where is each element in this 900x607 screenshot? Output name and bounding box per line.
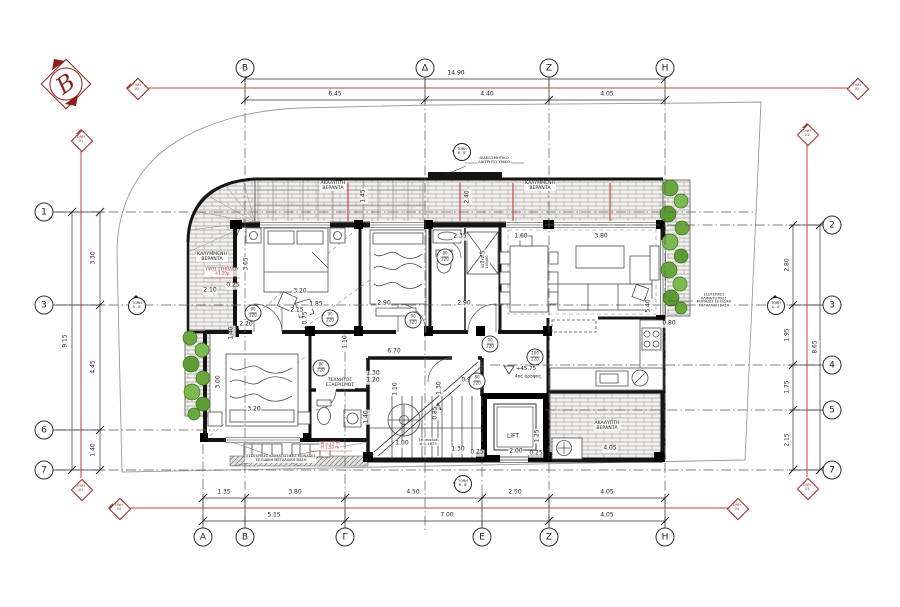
dimension-label: 2.40	[465, 189, 472, 204]
grid-bubble: 3	[823, 296, 842, 315]
grid-bubble: 1	[35, 203, 54, 222]
dimension-label: 9.15	[63, 333, 70, 348]
note-label: ΔΙΑΚΟΣΜΗΤΙΚΟΔΙΑΤΡΗΤΟ ΥΛΙΚΟ	[477, 156, 511, 164]
room-label: ΑΚΑΛΥΠΤΗΒΕΡΑΝΤΑ	[594, 421, 621, 431]
dimension-label: 3.80	[287, 490, 302, 497]
dimension-label: 2.90	[376, 301, 391, 308]
dimension-label: 0.25	[225, 283, 240, 290]
dimension-label: 1.10	[343, 334, 350, 349]
dimension-label: 6.70	[386, 349, 401, 356]
dimension-label: 2.90	[456, 301, 471, 308]
grid-bubble: 3	[35, 296, 54, 315]
dimension-label: 3.30	[91, 250, 98, 265]
grid-bubble: Ζ	[540, 528, 559, 547]
dimension-label: 5.40	[646, 298, 653, 313]
dimension-label: 1.95	[785, 327, 792, 342]
dimension-label: 1.40	[229, 325, 236, 340]
door-size-tag: 100220	[527, 349, 544, 366]
room-label: +45.75	[515, 366, 537, 372]
grid-bubble: 5	[823, 401, 842, 420]
dimension-label: 0.80	[661, 321, 676, 328]
room-label: LIFT	[506, 434, 520, 441]
note-label: W 1.15 mH 1.50 m	[319, 442, 340, 451]
dimension-label: 1.35	[216, 490, 231, 497]
note-label: ΕΣΩΤΕΡΙΚΕΣ ΚΛΙΜΑΤΙΣΤΙΚΕΣ ΜΟΝΑΔΕΣΣΕ ΕΙΔΙΚ…	[245, 455, 316, 463]
dimension-label: 0.25	[528, 451, 543, 458]
dimension-label: 1.75	[785, 379, 792, 394]
dimension-label: 4.05	[599, 92, 614, 99]
dimension-label: 1.30	[437, 380, 444, 395]
dimension-label: 6.45	[327, 92, 342, 99]
room-label: ΚΑΛΥΜΜΕΝΗΒΕΡΑΝΤΑ	[196, 252, 228, 262]
dimension-label: 8.65	[813, 339, 820, 354]
dimension-label: 1.20	[365, 378, 380, 385]
door-size-tag: 80220	[313, 360, 330, 377]
grid-bubble: 2	[823, 216, 842, 235]
door-size-tag: 90220	[482, 336, 499, 353]
dimension-label: 14.90	[446, 71, 465, 78]
grid-bubble: 7	[35, 461, 54, 480]
room-label: 4ος όροφος	[514, 376, 542, 381]
north-arrow-letter: B	[52, 69, 81, 100]
grid-bubble: Ε	[473, 528, 492, 547]
door-size-tag: 90220	[405, 312, 422, 329]
dimension-label: 4.05	[599, 513, 614, 520]
grid-bubble: Β	[236, 528, 255, 547]
dimension-label: 2.00	[508, 449, 523, 456]
dimension-label: 0.75	[303, 310, 310, 325]
grid-bubble: Γ	[336, 528, 355, 547]
dimension-label: 3.20	[246, 407, 261, 414]
dimension-label: 2.10	[202, 288, 217, 295]
dimension-label: 1.85	[308, 302, 323, 309]
room-label: ΤΕΧΝΗΤΟΣΕΞΑΕΡΙΣΜΟΣ	[325, 379, 355, 389]
grid-bubble: Η	[656, 59, 675, 78]
dimension-label: 4.50	[405, 490, 420, 497]
floor-plan-canvas: ΒΔΖΗΑΒΓΕΖΗ13672345714.906.454.404.051.35…	[0, 0, 900, 607]
north-arrow: B	[40, 58, 92, 110]
room-label: ΥΨΟΣ ΣΤΗΘΑΙΟΥ+1.20μ	[204, 268, 239, 277]
grid-bubble: 4	[823, 356, 842, 375]
dimension-label: 2.20	[238, 322, 253, 329]
door-size-tag: 80220	[469, 373, 486, 390]
dimension-label: 1.00	[394, 441, 409, 448]
dimension-label: 2.50	[507, 490, 522, 497]
note-label: 16 σκαλιά≠ 0.1875	[417, 438, 438, 446]
dimension-label: 3.80	[593, 234, 608, 241]
grid-bubble: Ζ	[540, 59, 559, 78]
dimension-label: 2.15	[785, 432, 792, 447]
door-size-tag: 80220	[437, 249, 454, 266]
dimension-label: 1.10	[393, 381, 400, 396]
dimension-label: 1.25	[535, 428, 542, 443]
dimension-label: 0.25	[469, 450, 484, 457]
dimension-label: 1.40	[91, 442, 98, 457]
dimension-label: 4.05	[599, 490, 614, 497]
grid-bubble: Α	[194, 528, 213, 547]
grid-bubble: 6	[35, 421, 54, 440]
dimension-label: 4.40	[479, 92, 494, 99]
dimension-label: 5.15	[266, 513, 281, 520]
north-arrow-circle: B	[50, 68, 83, 101]
dimension-label: 7.00	[439, 513, 454, 520]
note-label: ΝΤΟΥΖ145x80	[482, 254, 490, 269]
dimension-label: 3.20	[292, 289, 307, 296]
dimension-label: 2.35	[452, 234, 467, 241]
door-size-tag: 90220	[245, 305, 262, 322]
grid-bubble: Η	[656, 528, 675, 547]
dimension-label: 1.30	[450, 447, 465, 454]
annotation-layer: ΒΔΖΗΑΒΓΕΖΗ13672345714.906.454.404.051.35…	[0, 0, 900, 607]
room-label: ΚΑΛΥΜΜΕΝΗΒΕΡΑΝΤΑ	[524, 181, 556, 191]
grid-bubble: Δ	[416, 59, 435, 78]
dimension-label: 1.45	[361, 188, 368, 203]
note-label: ΕΣΩΤΕΡΙΚΕΣΚΛΙΜΑΤΙΣΤΙΚΕΣΜΟΝΑΔΕΣ ΣΕ ΕΙΔΙΚΗ…	[696, 294, 733, 309]
dimension-label: 2.80	[785, 257, 792, 272]
dimension-label: 0.85	[433, 405, 440, 420]
dimension-label: 4.05	[602, 446, 617, 453]
dimension-label: 1.60	[513, 234, 528, 241]
grid-bubble: 7	[823, 461, 842, 480]
dimension-label: 1.40	[364, 409, 371, 424]
dimension-label: 4.45	[91, 359, 98, 374]
grid-bubble: Β	[236, 59, 255, 78]
door-size-tag: 90220	[322, 310, 339, 327]
dimension-label: 3.00	[216, 374, 223, 389]
room-label: ΑΚΑΛΥΠΤΗΒΕΡΑΝΤΑ	[320, 181, 347, 191]
dimension-label: 3.65	[244, 256, 251, 271]
